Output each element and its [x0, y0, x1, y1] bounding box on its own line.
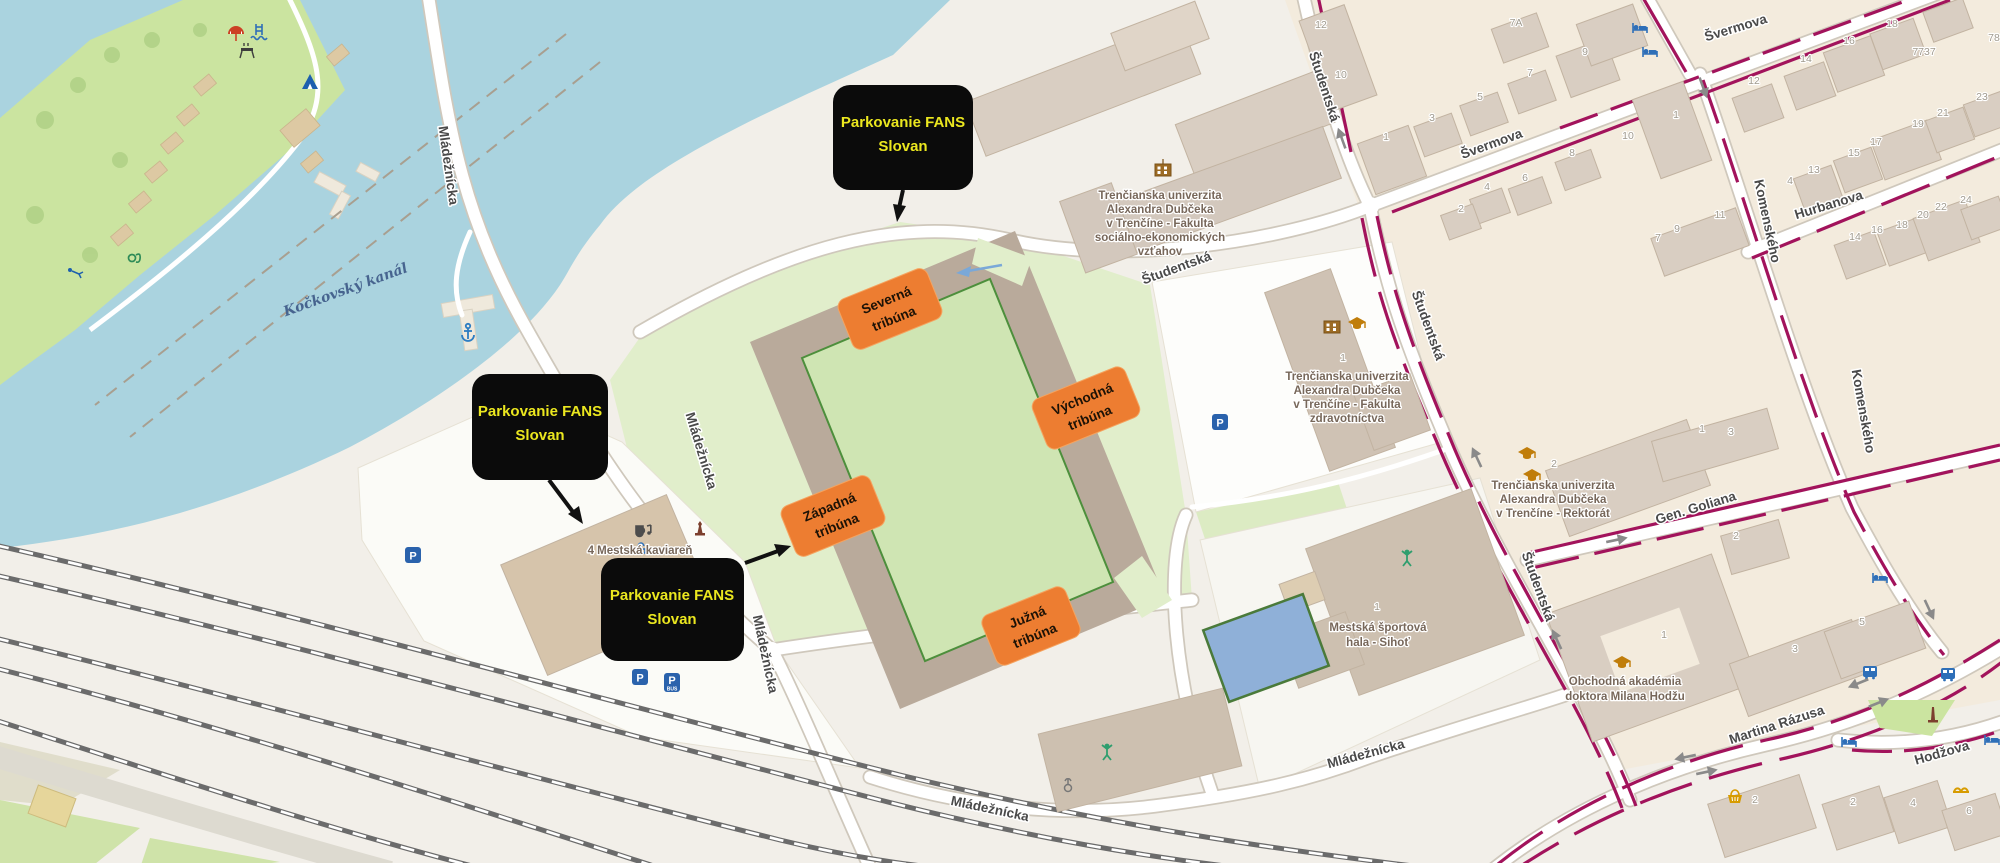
svg-text:zdravotníctva: zdravotníctva	[1310, 413, 1385, 425]
house-number: 3	[1792, 643, 1798, 655]
svg-text:Parkovanie FANS: Parkovanie FANS	[610, 587, 734, 604]
house-number: 18	[1896, 219, 1908, 231]
house-number: 2	[1458, 203, 1464, 215]
house-number: 10	[1622, 130, 1634, 142]
house-number: 2	[1850, 796, 1856, 808]
house-number: 2	[1733, 530, 1739, 542]
svg-text:Parkovanie FANS: Parkovanie FANS	[841, 114, 965, 131]
house-number: 4	[1910, 797, 1916, 809]
svg-text:hala - Sihoť: hala - Sihoť	[1346, 637, 1410, 649]
parking-fans-box-top: Parkovanie FANS Slovan	[833, 85, 973, 190]
house-number: 15	[1848, 147, 1860, 159]
house-number: 7	[1527, 67, 1533, 79]
svg-text:Slovan: Slovan	[878, 138, 927, 155]
house-number: 16	[1843, 35, 1855, 47]
svg-text:Slovan: Slovan	[647, 611, 696, 628]
svg-text:vzťahov: vzťahov	[1138, 246, 1183, 258]
parking-icon: P	[405, 547, 421, 563]
house-number: 1	[1699, 423, 1705, 435]
svg-text:Mestská športová: Mestská športová	[1329, 622, 1427, 634]
house-number: 2	[1752, 794, 1758, 806]
svg-text:BUS: BUS	[667, 687, 678, 693]
house-number: 12	[1315, 19, 1327, 31]
svg-text:Slovan: Slovan	[515, 427, 564, 444]
house-number: 1	[1661, 629, 1667, 641]
map-canvas: P P P P PBUS	[0, 0, 2000, 863]
parking-icon: P	[1212, 414, 1228, 430]
house-number: 6	[1966, 805, 1972, 817]
svg-text:Trenčianska univerzita: Trenčianska univerzita	[1098, 190, 1222, 202]
house-number: 20	[1917, 209, 1929, 221]
house-number: 2	[1551, 458, 1557, 470]
house-number: 1	[1374, 601, 1380, 613]
svg-text:v Trenčíne - Fakulta: v Trenčíne - Fakulta	[1106, 218, 1214, 230]
house-number: 10	[1335, 69, 1347, 81]
house-number: 21	[1937, 107, 1949, 119]
house-number: 1	[1340, 352, 1346, 364]
svg-text:Alexandra Dubčeka: Alexandra Dubčeka	[1107, 204, 1214, 216]
svg-text:sociálno-ekonomických: sociálno-ekonomických	[1095, 232, 1225, 244]
house-number: 22	[1935, 201, 1947, 213]
house-number: 7	[1655, 232, 1661, 244]
svg-text:Trenčianska univerzita: Trenčianska univerzita	[1491, 480, 1615, 492]
svg-text:v Trenčíne - Rektorát: v Trenčíne - Rektorát	[1496, 508, 1610, 520]
house-number: 12	[1748, 75, 1760, 87]
house-number: 5	[1859, 616, 1865, 628]
house-number: 1	[1383, 131, 1389, 143]
house-number: 13	[1808, 164, 1820, 176]
parking-fans-box-bottom: Parkovanie FANS Slovan	[601, 558, 744, 661]
house-number: 7A	[1510, 17, 1523, 29]
poi-university-rektorat: Trenčianska univerzita Alexandra Dubčeka…	[1491, 480, 1615, 520]
house-number: 78	[1988, 32, 2000, 44]
poi-kaviaren: 4 Mestská kaviareň	[588, 545, 693, 557]
parking-icon: P	[632, 669, 648, 685]
parking-bus-icon: PBUS	[664, 673, 680, 693]
house-number: 5	[1477, 91, 1483, 103]
svg-text:P: P	[409, 551, 416, 563]
house-number: 8	[1569, 147, 1575, 159]
house-number: 4	[1484, 181, 1490, 193]
house-number: 7737	[1912, 46, 1936, 58]
svg-text:v Trenčíne - Fakulta: v Trenčíne - Fakulta	[1293, 399, 1401, 411]
house-number: 9	[1674, 223, 1680, 235]
house-number: 16	[1871, 224, 1883, 236]
house-number: 11	[1715, 209, 1726, 221]
house-number: 6	[1522, 172, 1528, 184]
house-number: 3	[1429, 112, 1435, 124]
house-number: 9	[1582, 46, 1588, 58]
house-number: 24	[1960, 194, 1972, 206]
svg-text:Alexandra Dubčeka: Alexandra Dubčeka	[1294, 385, 1401, 397]
svg-text:P: P	[668, 675, 675, 687]
house-number: 4	[1787, 175, 1793, 187]
house-number: 19	[1912, 118, 1924, 130]
university-building-icon	[1324, 321, 1340, 333]
svg-text:Trenčianska univerzita: Trenčianska univerzita	[1285, 371, 1409, 383]
map-screenshot: P P P P PBUS	[0, 0, 2000, 863]
house-number: 14	[1800, 53, 1812, 65]
parking-fans-box-left: Parkovanie FANS Slovan	[472, 374, 608, 480]
svg-text:doktora Milana Hodžu: doktora Milana Hodžu	[1565, 691, 1684, 703]
house-number: 1	[1673, 109, 1679, 121]
svg-text:P: P	[636, 673, 643, 685]
svg-text:Obchodná akadémia: Obchodná akadémia	[1569, 676, 1682, 688]
house-number: 18	[1886, 18, 1898, 30]
svg-text:Alexandra Dubčeka: Alexandra Dubčeka	[1500, 494, 1607, 506]
house-number: 17	[1870, 136, 1882, 148]
svg-text:Parkovanie FANS: Parkovanie FANS	[478, 403, 602, 420]
house-number: 23	[1976, 91, 1988, 103]
house-number: 14	[1849, 231, 1861, 243]
house-number: 3	[1728, 426, 1734, 438]
svg-text:P: P	[1216, 418, 1223, 430]
